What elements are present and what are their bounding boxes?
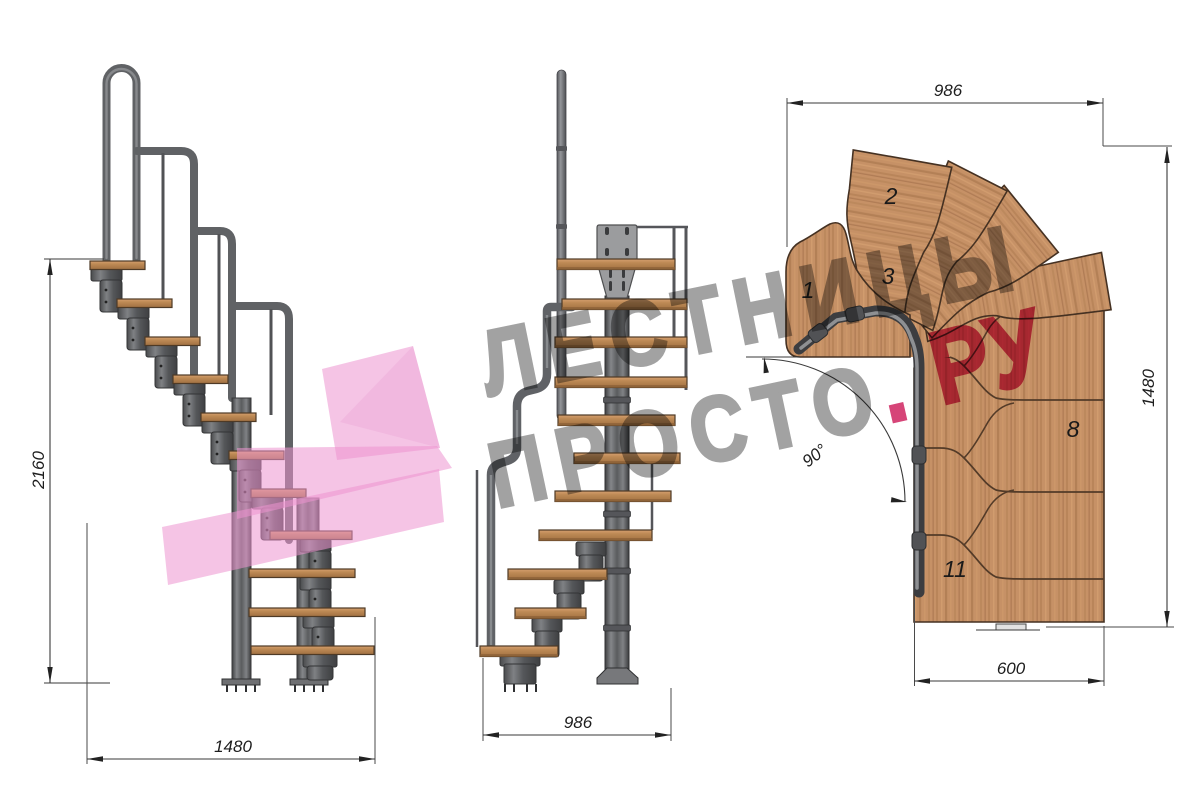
svg-text:986: 986 (564, 713, 593, 732)
svg-text:1480: 1480 (1139, 369, 1158, 407)
svg-text:11: 11 (943, 556, 967, 582)
svg-text:8: 8 (1067, 416, 1080, 442)
svg-text:986: 986 (934, 81, 963, 100)
svg-text:1480: 1480 (214, 737, 252, 756)
svg-text:2160: 2160 (29, 451, 48, 490)
svg-text:2: 2 (884, 183, 898, 209)
svg-text:600: 600 (997, 659, 1026, 678)
